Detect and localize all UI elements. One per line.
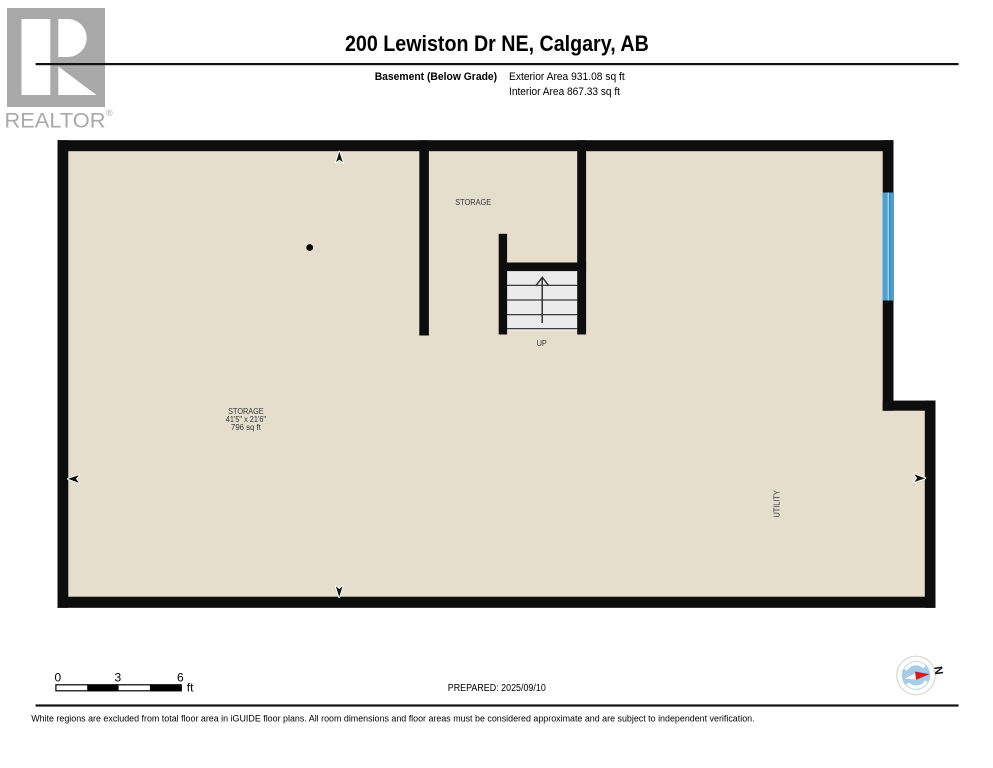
svg-text:STORAGE: STORAGE <box>455 198 491 207</box>
svg-text:UP: UP <box>537 339 548 348</box>
svg-text:Basement (Below Grade): Basement (Below Grade) <box>375 71 498 83</box>
svg-text:Exterior Area 931.08 sq ft: Exterior Area 931.08 sq ft <box>509 71 625 83</box>
svg-text:®: ® <box>106 108 113 118</box>
svg-text:200 Lewiston Dr NE, Calgary, A: 200 Lewiston Dr NE, Calgary, AB <box>345 31 649 56</box>
svg-text:0: 0 <box>54 670 61 684</box>
svg-text:UTILITY: UTILITY <box>773 490 782 518</box>
svg-text:N: N <box>931 666 944 676</box>
svg-text:Interior Area 867.33 sq ft: Interior Area 867.33 sq ft <box>509 86 620 98</box>
svg-text:6: 6 <box>177 670 184 684</box>
svg-text:REALTOR: REALTOR <box>5 109 106 133</box>
svg-text:White regions are excluded fro: White regions are excluded from total fl… <box>31 713 754 723</box>
svg-text:ft: ft <box>187 681 194 695</box>
svg-text:796 sq ft: 796 sq ft <box>231 423 261 432</box>
svg-text:3: 3 <box>115 670 122 684</box>
svg-text:PREPARED: 2025/09/10: PREPARED: 2025/09/10 <box>448 683 546 694</box>
